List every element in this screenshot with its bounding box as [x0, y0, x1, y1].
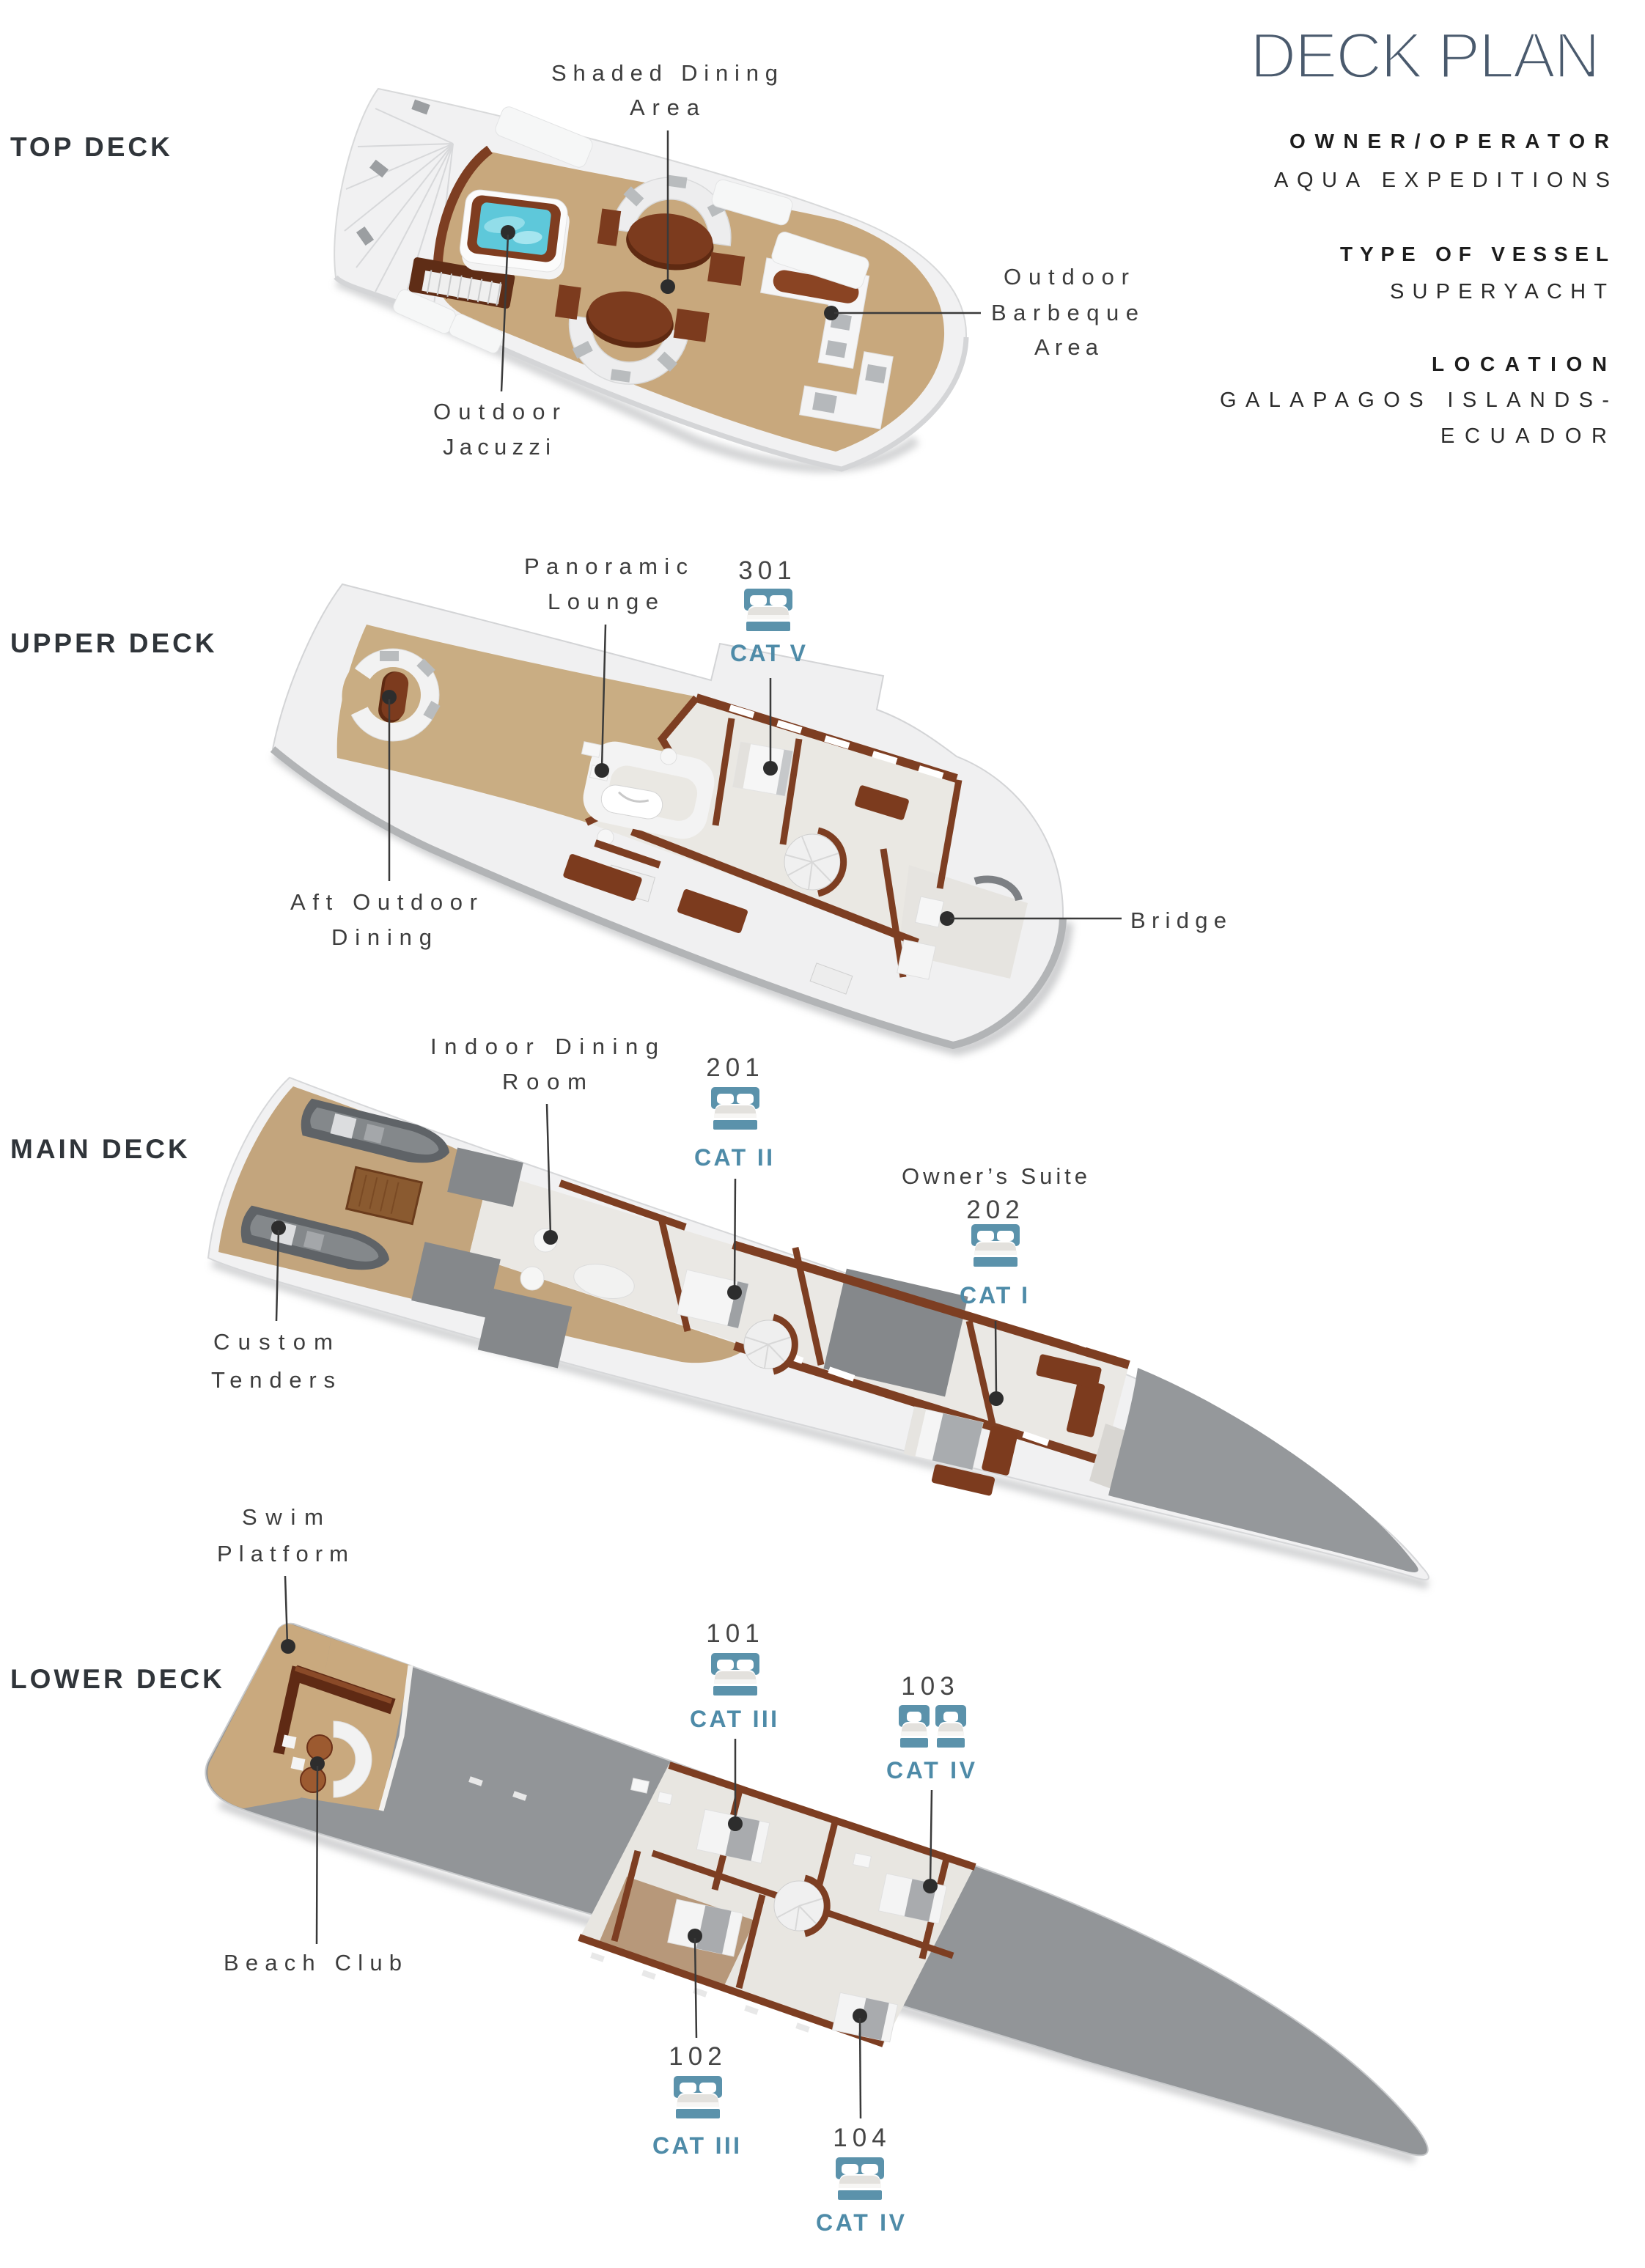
svg-text:DECK PLAN: DECK PLAN [1250, 19, 1600, 92]
svg-text:102: 102 [669, 2042, 726, 2071]
svg-text:GALAPAGOS ISLANDS-: GALAPAGOS ISLANDS- [1220, 389, 1609, 412]
svg-text:Jacuzzi: Jacuzzi [443, 434, 556, 460]
svg-text:TOP DECK: TOP DECK [10, 132, 173, 162]
svg-text:Custom: Custom [213, 1329, 338, 1355]
svg-text:Area: Area [630, 95, 704, 120]
svg-text:202: 202 [966, 1196, 1024, 1224]
svg-text:103: 103 [901, 1672, 959, 1701]
svg-text:CAT II: CAT II [694, 1144, 776, 1171]
svg-text:OWNER/OPERATOR: OWNER/OPERATOR [1289, 130, 1609, 152]
svg-text:Swim: Swim [242, 1504, 328, 1530]
svg-text:Barbeque: Barbeque [991, 300, 1144, 325]
svg-text:Panoramic: Panoramic [524, 553, 693, 579]
svg-text:Indoor Dining: Indoor Dining [430, 1034, 663, 1059]
svg-text:SUPERYACHT: SUPERYACHT [1390, 280, 1607, 303]
svg-text:101: 101 [706, 1619, 764, 1648]
svg-text:CAT I: CAT I [960, 1282, 1031, 1308]
svg-text:TYPE OF VESSEL: TYPE OF VESSEL [1340, 243, 1608, 265]
svg-text:Dining: Dining [331, 924, 437, 950]
svg-text:Lounge: Lounge [548, 589, 663, 614]
svg-text:201: 201 [706, 1053, 764, 1082]
svg-text:Tenders: Tenders [211, 1367, 340, 1393]
svg-text:UPPER DECK: UPPER DECK [10, 628, 218, 658]
svg-text:Aft Outdoor: Aft Outdoor [290, 889, 482, 915]
svg-text:LOWER DECK: LOWER DECK [10, 1664, 225, 1694]
svg-text:LOCATION: LOCATION [1432, 353, 1607, 375]
svg-text:Room: Room [502, 1069, 592, 1094]
svg-text:CAT V: CAT V [730, 640, 809, 666]
svg-text:Beach Club: Beach Club [224, 1950, 407, 1976]
svg-text:ECUADOR: ECUADOR [1440, 424, 1607, 448]
svg-text:CAT IV: CAT IV [816, 2209, 908, 2236]
svg-text:Bridge: Bridge [1130, 907, 1232, 933]
svg-text:Area: Area [1034, 334, 1103, 360]
svg-text:MAIN DECK: MAIN DECK [10, 1134, 191, 1164]
svg-text:104: 104 [833, 2124, 891, 2152]
svg-text:Outdoor: Outdoor [1004, 264, 1134, 290]
svg-text:Shaded Dining: Shaded Dining [551, 60, 783, 86]
svg-text:Outdoor: Outdoor [433, 399, 565, 424]
svg-text:Owner’s Suite: Owner’s Suite [902, 1163, 1092, 1189]
svg-text:CAT III: CAT III [652, 2132, 743, 2159]
svg-text:301: 301 [738, 556, 796, 585]
svg-text:AQUA EXPEDITIONS: AQUA EXPEDITIONS [1274, 169, 1610, 192]
svg-text:CAT IV: CAT IV [886, 1757, 979, 1783]
svg-text:CAT III: CAT III [690, 1706, 781, 1732]
svg-text:Platform: Platform [217, 1541, 353, 1566]
